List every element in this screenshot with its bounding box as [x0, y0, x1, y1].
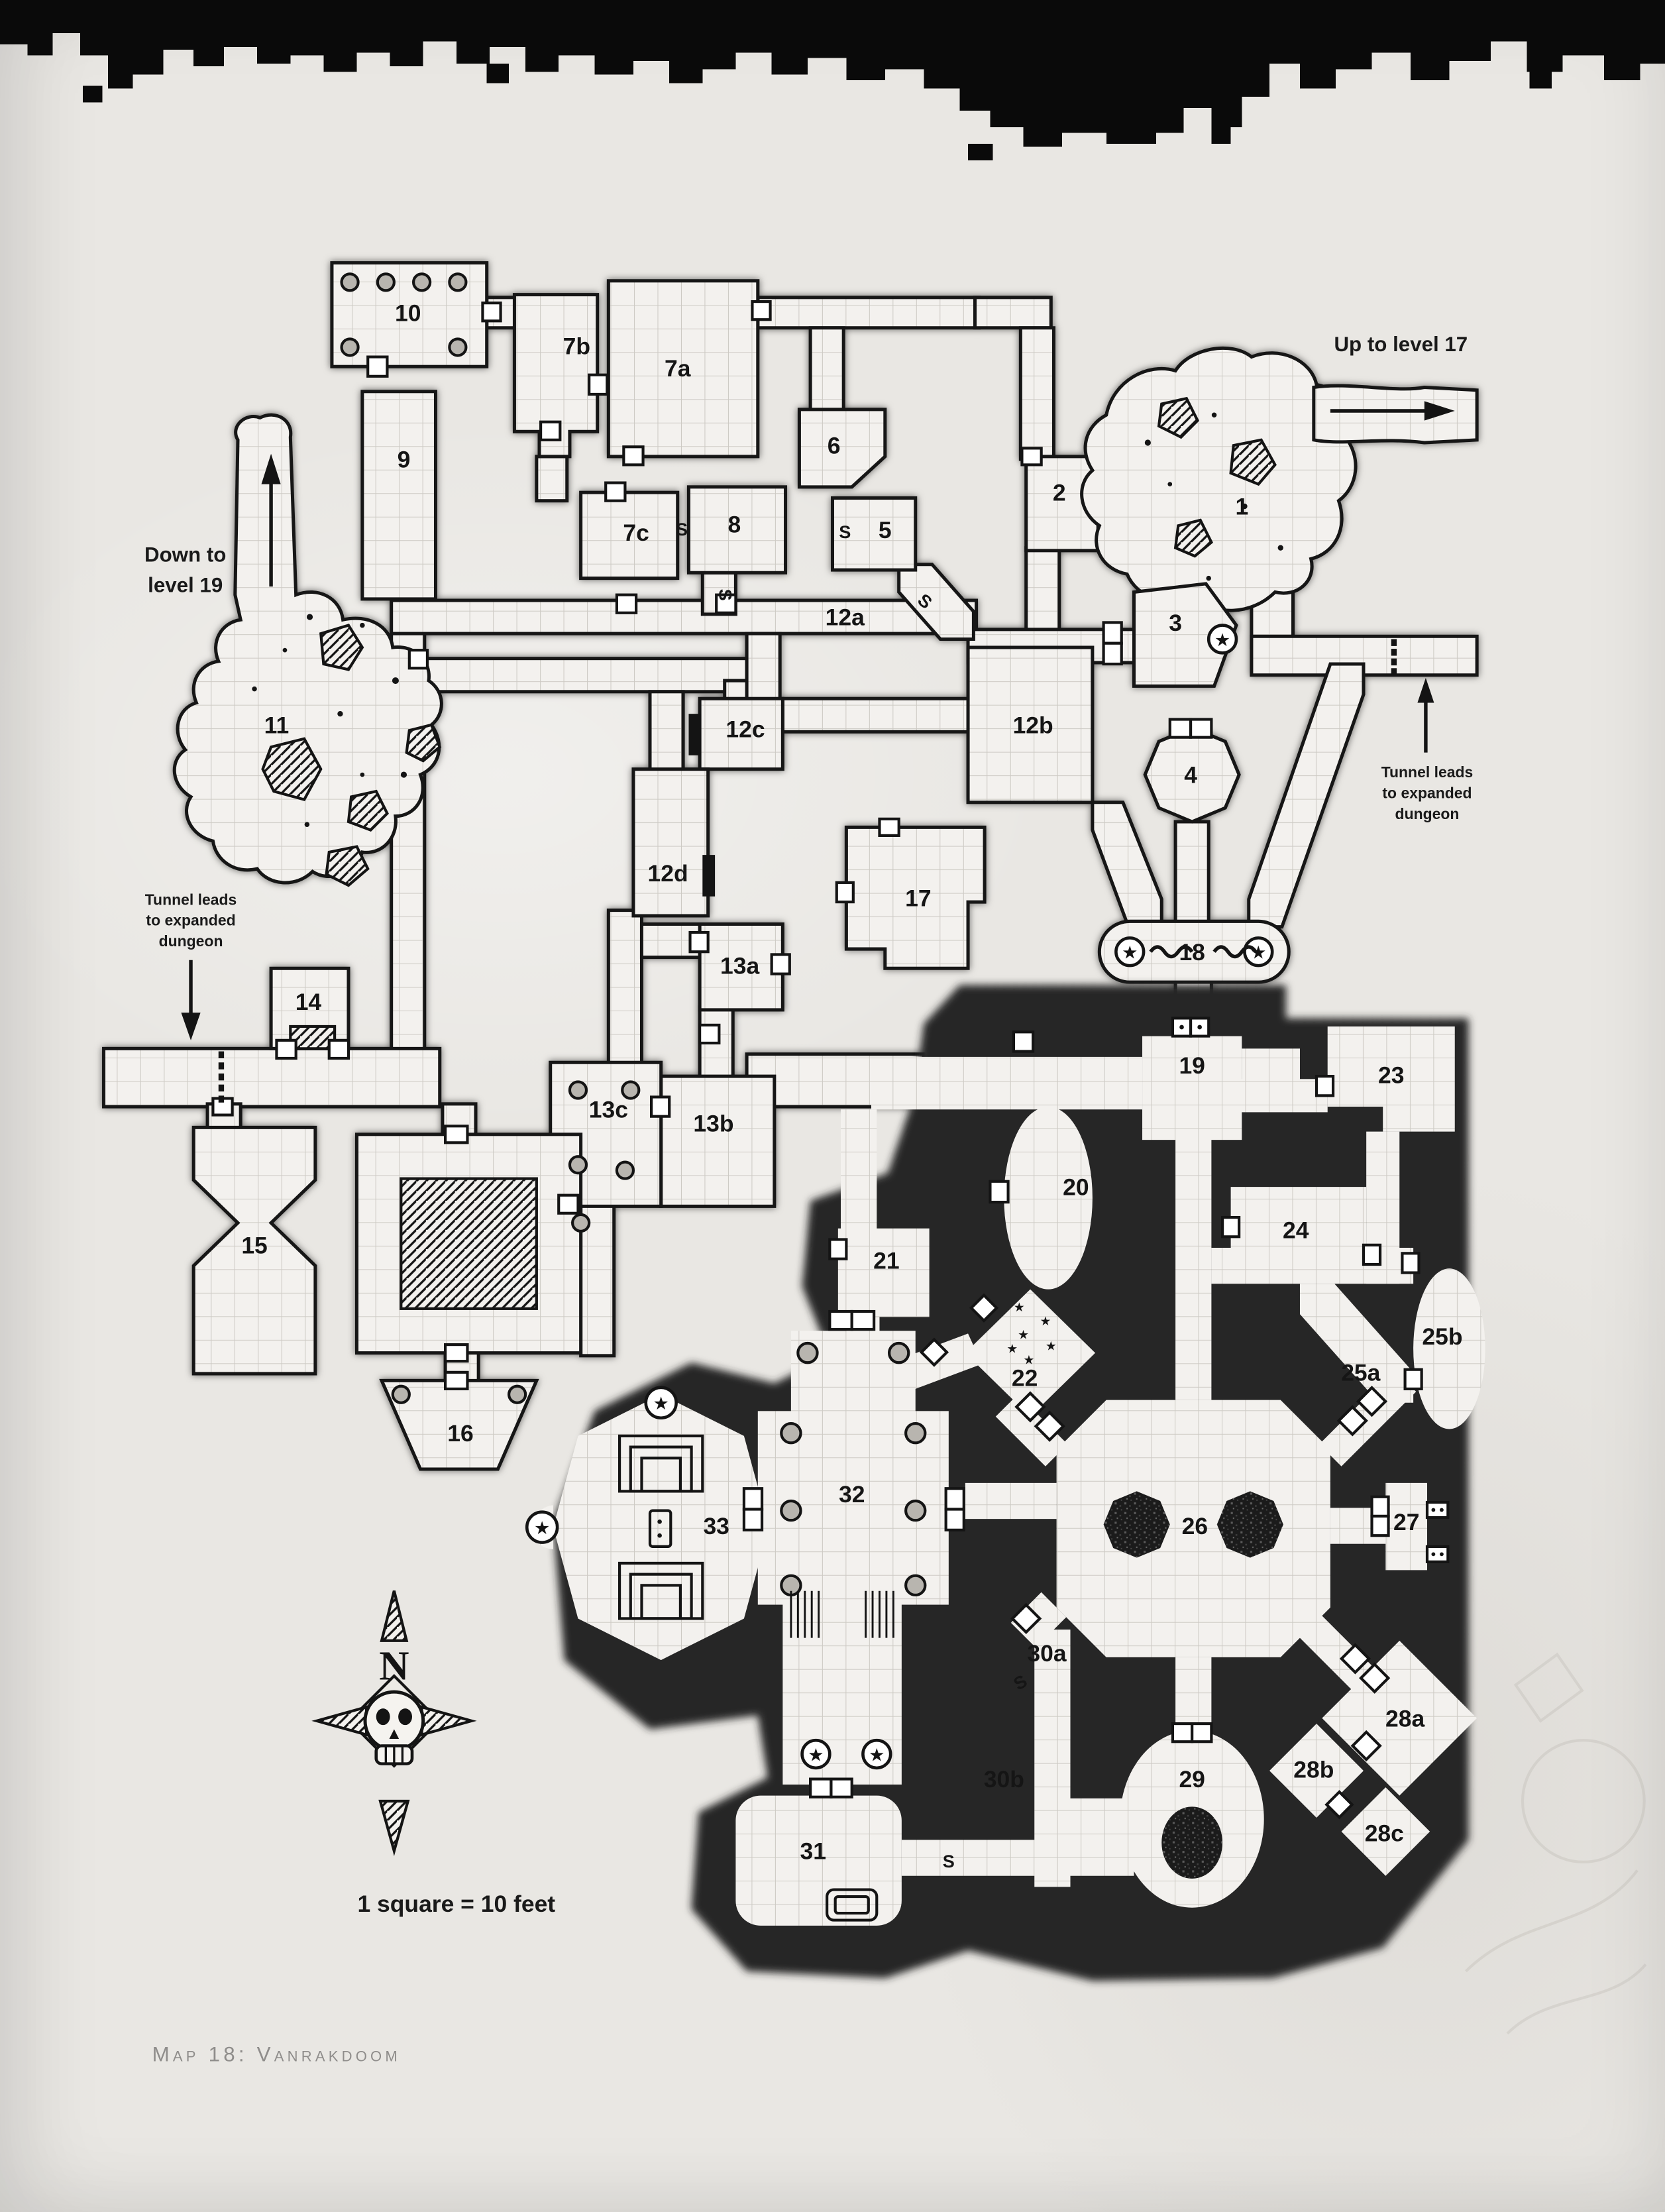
- room-label: 12a: [826, 604, 865, 631]
- room-label: 17: [905, 885, 931, 911]
- svg-text:★: ★: [1122, 943, 1138, 964]
- room-label: 8: [727, 512, 741, 538]
- svg-text:★: ★: [1046, 1339, 1057, 1353]
- room-label: 12b: [1013, 712, 1053, 738]
- annotation-down-exit-2: level 19: [148, 573, 223, 596]
- room-label: 7a: [665, 355, 691, 382]
- room-label: 32: [839, 1481, 865, 1508]
- room-label: 29: [1179, 1766, 1205, 1793]
- room-label: 23: [1378, 1062, 1404, 1089]
- secret-door-marker: S: [839, 522, 851, 542]
- room-label: 26: [1182, 1513, 1208, 1539]
- annotation-up-exit: Up to level 17: [1334, 333, 1468, 356]
- secret-door-marker: S: [715, 589, 735, 601]
- svg-text:★: ★: [808, 1745, 824, 1765]
- svg-text:to expanded: to expanded: [146, 912, 235, 929]
- room-label: 13a: [720, 953, 759, 979]
- room-label: 5: [879, 517, 892, 543]
- compass-rose: N: [317, 1591, 472, 1851]
- dungeon-map: ★★ ★★ ★★ ★ ★★ ★★ ★★ Up to level 17 Down …: [0, 0, 1665, 2212]
- svg-text:★: ★: [1214, 630, 1230, 651]
- svg-text:Tunnel leads: Tunnel leads: [1381, 763, 1474, 781]
- compass-north-letter: N: [379, 1642, 409, 1688]
- svg-text:dungeon: dungeon: [159, 932, 223, 950]
- room-label: 4: [1184, 762, 1197, 789]
- svg-text:★: ★: [1040, 1315, 1051, 1329]
- room-label: 30b: [984, 1766, 1024, 1793]
- room-label: 13c: [589, 1097, 628, 1123]
- room-label: 16: [447, 1420, 473, 1447]
- pencil-sketch: [1466, 1655, 1645, 2034]
- svg-text:★: ★: [869, 1745, 885, 1765]
- annotation-down-exit-1: Down to: [144, 543, 226, 567]
- room-label: 1: [1235, 494, 1248, 520]
- secret-door-marker: S: [943, 1851, 955, 1871]
- svg-text:★: ★: [1014, 1301, 1025, 1315]
- room-label: 6: [828, 433, 841, 459]
- room-label: 28a: [1385, 1705, 1424, 1732]
- secret-door-marker: S: [676, 519, 688, 539]
- annotation-tunnel-left: Tunnel leads to expanded dungeon: [145, 891, 237, 1040]
- annotation-tunnel-right: Tunnel leads to expanded dungeon: [1381, 678, 1474, 822]
- room-label: 24: [1283, 1217, 1309, 1243]
- torn-page-edge: [0, 0, 1665, 160]
- svg-text:★: ★: [1250, 943, 1266, 964]
- room-label: 20: [1063, 1174, 1089, 1201]
- room-label: 14: [295, 989, 322, 1015]
- svg-text:★: ★: [653, 1394, 669, 1414]
- room-label: 11: [264, 712, 289, 738]
- room-label: 31: [800, 1838, 826, 1865]
- svg-text:to expanded: to expanded: [1382, 785, 1472, 802]
- skull-icon: [365, 1692, 423, 1750]
- svg-text:dungeon: dungeon: [1395, 805, 1460, 822]
- room-label: 7c: [623, 520, 649, 546]
- room-label: 30a: [1027, 1640, 1066, 1667]
- room-label: 10: [395, 300, 421, 326]
- room-label: 33: [703, 1513, 729, 1539]
- svg-text:★: ★: [1018, 1329, 1029, 1343]
- svg-text:★: ★: [534, 1518, 550, 1539]
- room-label: 7b: [563, 333, 590, 359]
- room-label: 19: [1179, 1052, 1205, 1079]
- room-label: 21: [873, 1247, 899, 1274]
- map-page: ★★ ★★ ★★ ★ ★★ ★★ ★★ Up to level 17 Down …: [0, 0, 1665, 2212]
- svg-text:Tunnel leads: Tunnel leads: [145, 891, 237, 908]
- room-label: 28c: [1365, 1820, 1404, 1847]
- room-label: 27: [1393, 1509, 1419, 1535]
- room-label: 12c: [725, 716, 765, 743]
- room-label: 9: [398, 447, 411, 473]
- room-label: 3: [1169, 610, 1182, 636]
- room-label: 15: [241, 1232, 267, 1258]
- map-title: Map 18: Vanrakdoom: [152, 2042, 401, 2066]
- svg-text:★: ★: [1006, 1343, 1018, 1356]
- room-label: 18: [1179, 939, 1205, 966]
- room-label: 28b: [1293, 1757, 1334, 1783]
- room-label: 25b: [1422, 1323, 1462, 1350]
- room-label: 2: [1053, 480, 1066, 506]
- scale-note: 1 square = 10 feet: [357, 1891, 555, 1917]
- room-label: 13b: [693, 1111, 733, 1137]
- room-label: 25a: [1341, 1359, 1380, 1386]
- room-label: 22: [1012, 1365, 1038, 1392]
- room-label: 12d: [648, 860, 688, 887]
